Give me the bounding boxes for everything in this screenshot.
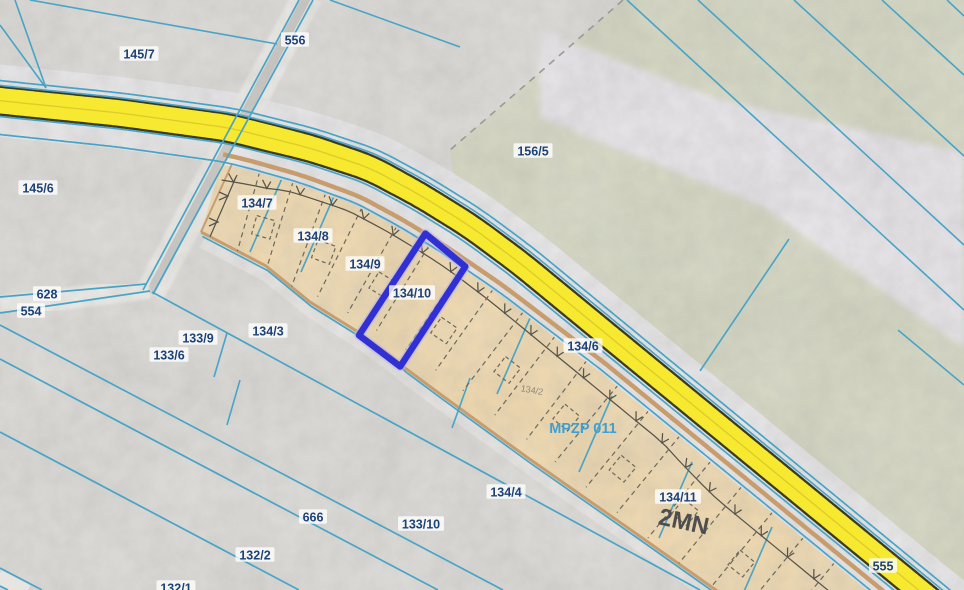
svg-text:666: 666 [303,511,324,525]
svg-text:133/6: 133/6 [153,349,184,363]
svg-text:134/10: 134/10 [393,287,431,301]
svg-text:134/3: 134/3 [252,325,283,339]
svg-text:MPZP 011: MPZP 011 [549,421,616,437]
svg-text:134/4: 134/4 [490,486,521,500]
svg-text:132/2: 132/2 [239,549,270,563]
svg-text:555: 555 [873,560,894,574]
svg-text:556: 556 [285,34,306,48]
svg-text:134/8: 134/8 [297,230,328,244]
svg-text:145/7: 145/7 [123,48,154,62]
svg-text:145/6: 145/6 [22,182,53,196]
svg-text:134/9: 134/9 [349,258,380,272]
svg-text:132/1: 132/1 [160,582,191,590]
svg-text:134/6: 134/6 [567,340,598,354]
svg-text:134/11: 134/11 [659,491,697,505]
svg-text:156/5: 156/5 [517,145,548,159]
svg-text:628: 628 [37,288,58,302]
svg-text:133/10: 133/10 [402,518,440,532]
svg-text:134/7: 134/7 [241,197,272,211]
svg-text:554: 554 [21,305,42,319]
svg-text:133/9: 133/9 [182,332,213,346]
